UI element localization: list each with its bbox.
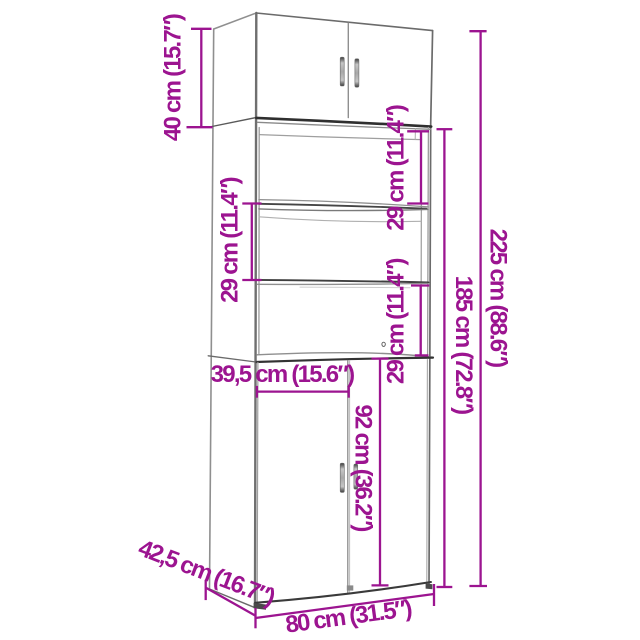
svg-text:40 cm (15.7″): 40 cm (15.7″)	[160, 14, 187, 141]
svg-text:39,5 cm (15.6″): 39,5 cm (15.6″)	[211, 361, 354, 388]
svg-text:92 cm (36.2″): 92 cm (36.2″)	[349, 404, 376, 531]
svg-text:29 cm (11.4″): 29 cm (11.4″)	[382, 259, 409, 385]
svg-text:185 cm (72.8″): 185 cm (72.8″)	[450, 276, 477, 415]
svg-text:29 cm (11.4″): 29 cm (11.4″)	[216, 177, 243, 303]
svg-text:29 cm (11.4″): 29 cm (11.4″)	[382, 105, 409, 231]
svg-text:225 cm (88.6″): 225 cm (88.6″)	[485, 229, 512, 368]
